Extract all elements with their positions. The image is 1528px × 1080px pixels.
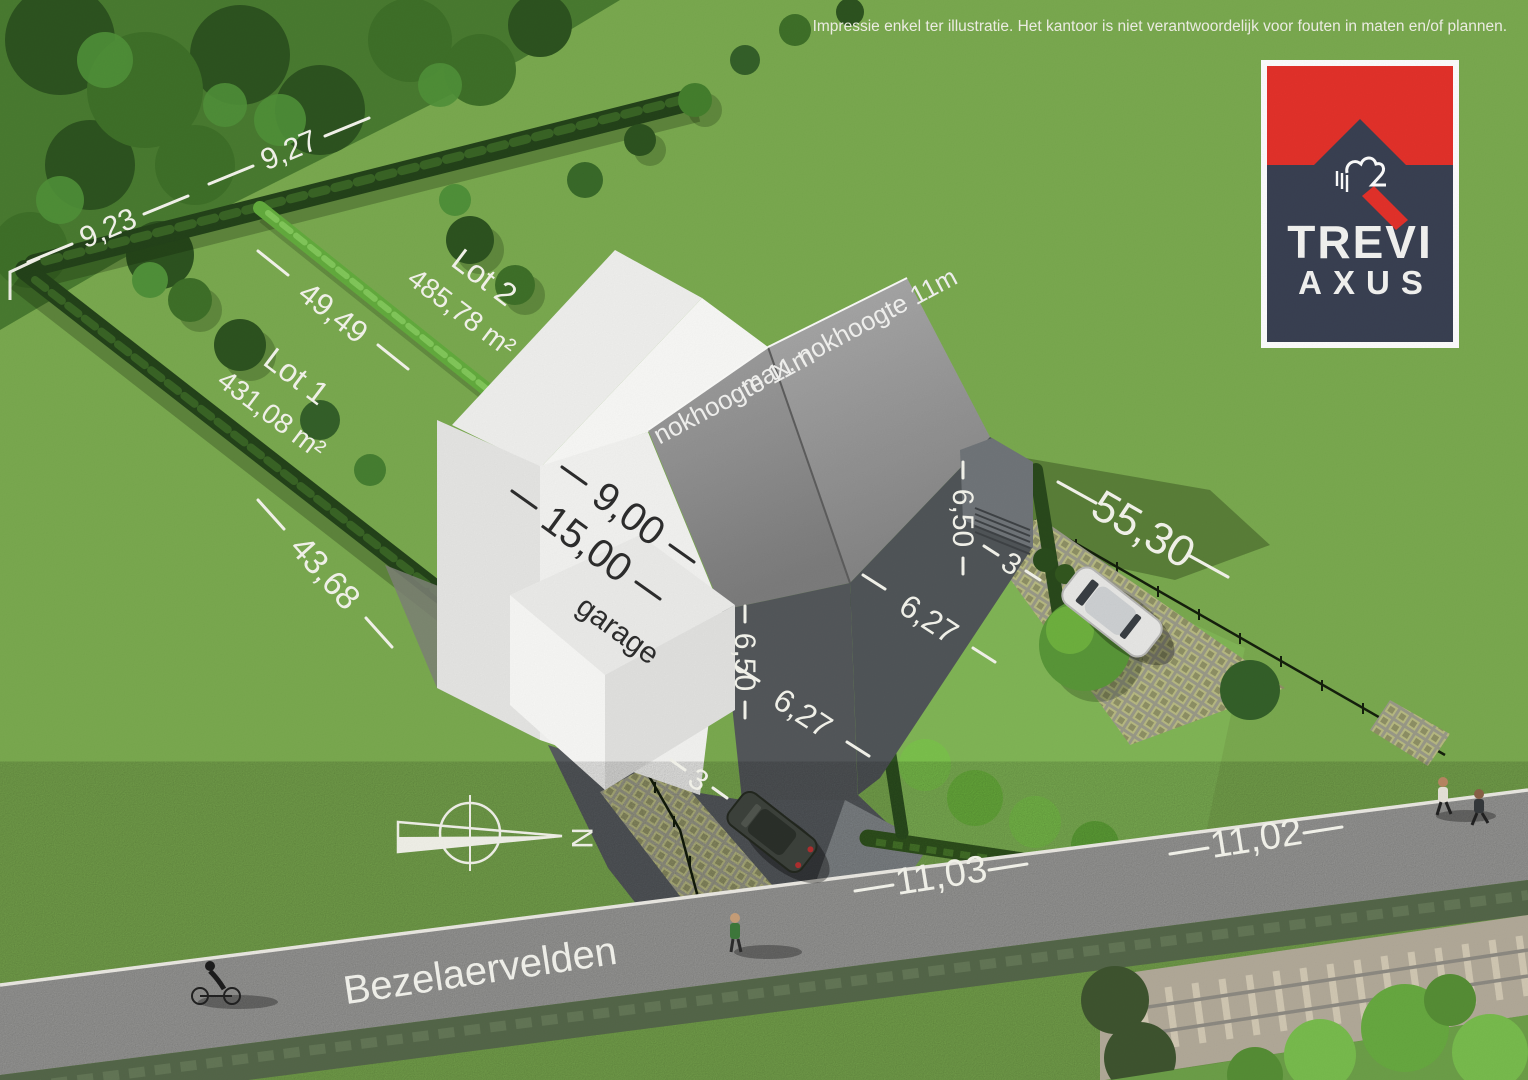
site-plan-render: N 9,23 9,27 49,49 Lot 1 431,08 m² Lot 2 … bbox=[0, 0, 1528, 1080]
grain-overlay bbox=[0, 0, 1528, 1080]
render-canvas: N 9,23 9,27 49,49 Lot 1 431,08 m² Lot 2 … bbox=[0, 0, 1528, 1080]
